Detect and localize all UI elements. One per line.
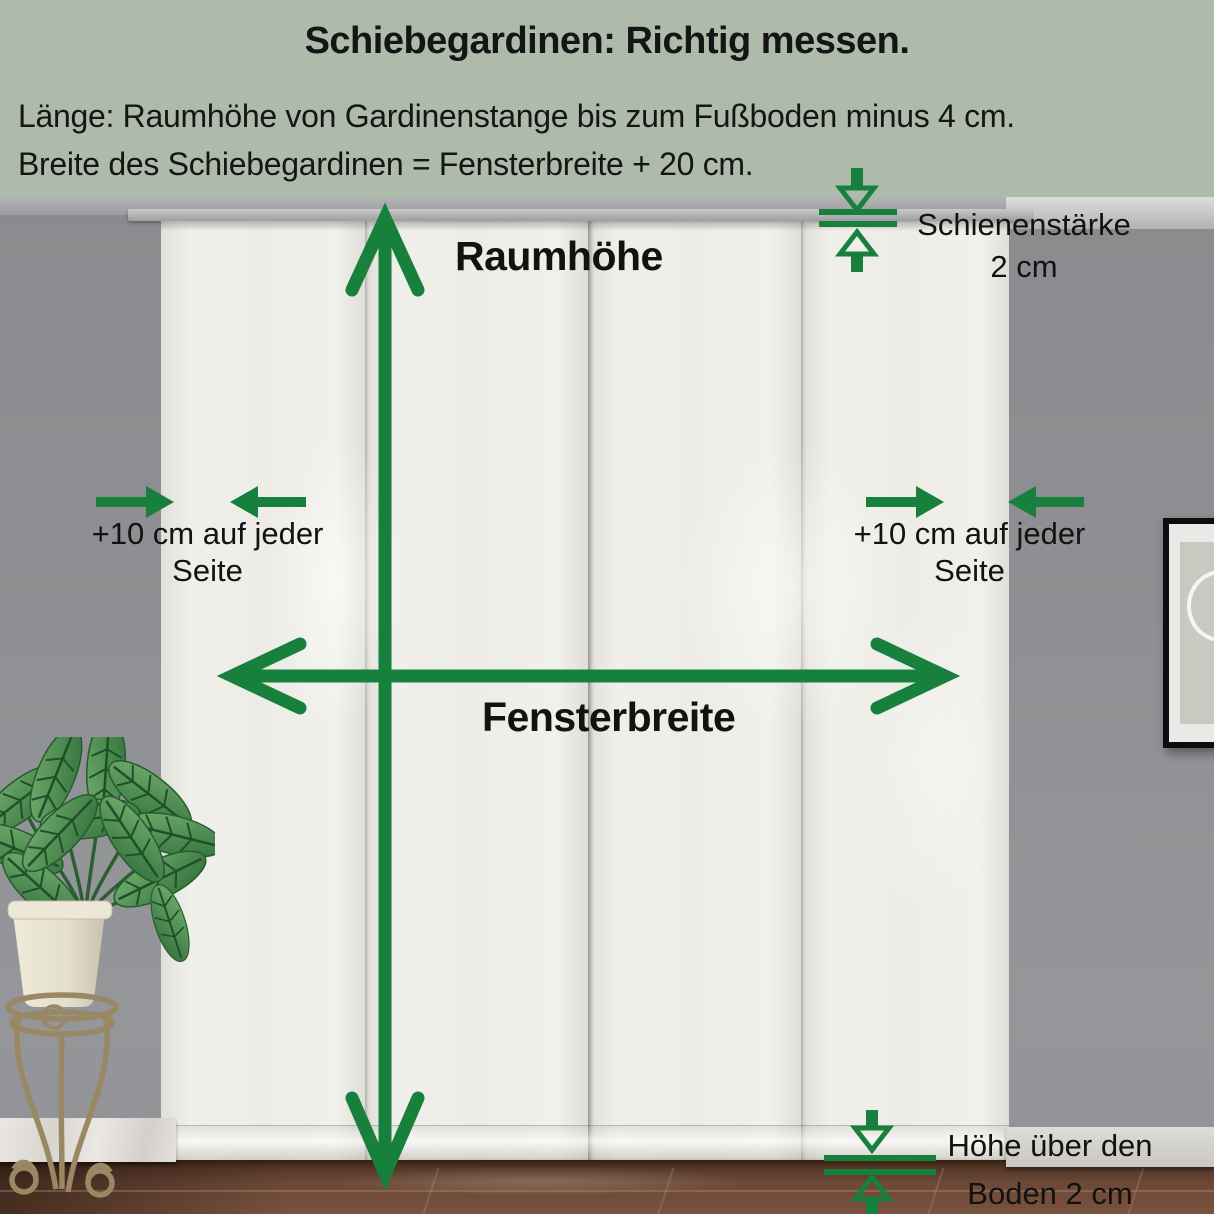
left-side-allowance-line1: +10 cm auf jeder [60, 515, 355, 552]
floor-clearance-line1: Höhe über den [915, 1122, 1185, 1170]
header: Schiebegardinen: Richtig messen. Länge: … [0, 0, 1214, 197]
rail-thickness-label-line1: Schienenstärke [896, 204, 1152, 246]
right-side-allowance-line1: +10 cm auf jeder [822, 515, 1117, 552]
right-side-allowance-label: +10 cm auf jeder Seite [822, 515, 1117, 589]
right-side-allowance-line2: Seite [822, 552, 1117, 589]
instruction-line-2: Breite des Schiebegardinen = Fensterbrei… [18, 146, 753, 183]
window-width-label: Fensterbreite [482, 694, 735, 741]
plant-stand [8, 995, 116, 1195]
rail-shadow [161, 221, 1009, 231]
sliding-curtain-panels [161, 221, 1009, 1160]
page-title: Schiebegardinen: Richtig messen. [0, 20, 1214, 63]
floor-clearance-line2: Boden 2 cm [915, 1170, 1185, 1214]
window-light-patch [851, 601, 1011, 921]
plant-pot [8, 901, 112, 1007]
picture-frame [1163, 518, 1214, 748]
left-side-allowance-line2: Seite [60, 552, 355, 589]
potted-plant [0, 737, 215, 1214]
instruction-line-1: Länge: Raumhöhe von Gardinenstange bis z… [18, 98, 1015, 135]
left-side-allowance-label: +10 cm auf jeder Seite [60, 515, 355, 589]
floor-clearance-label: Höhe über den Boden 2 cm [915, 1122, 1185, 1214]
infographic-canvas: Schiebegardinen: Richtig messen. Länge: … [0, 0, 1214, 1214]
room-height-label: Raumhöhe [455, 233, 663, 280]
rail-thickness-label-line2: 2 cm [896, 246, 1152, 288]
rail-thickness-label: Schienenstärke 2 cm [896, 204, 1152, 288]
picture-frame-art [1180, 542, 1214, 724]
curtain-hem [161, 1125, 1009, 1160]
